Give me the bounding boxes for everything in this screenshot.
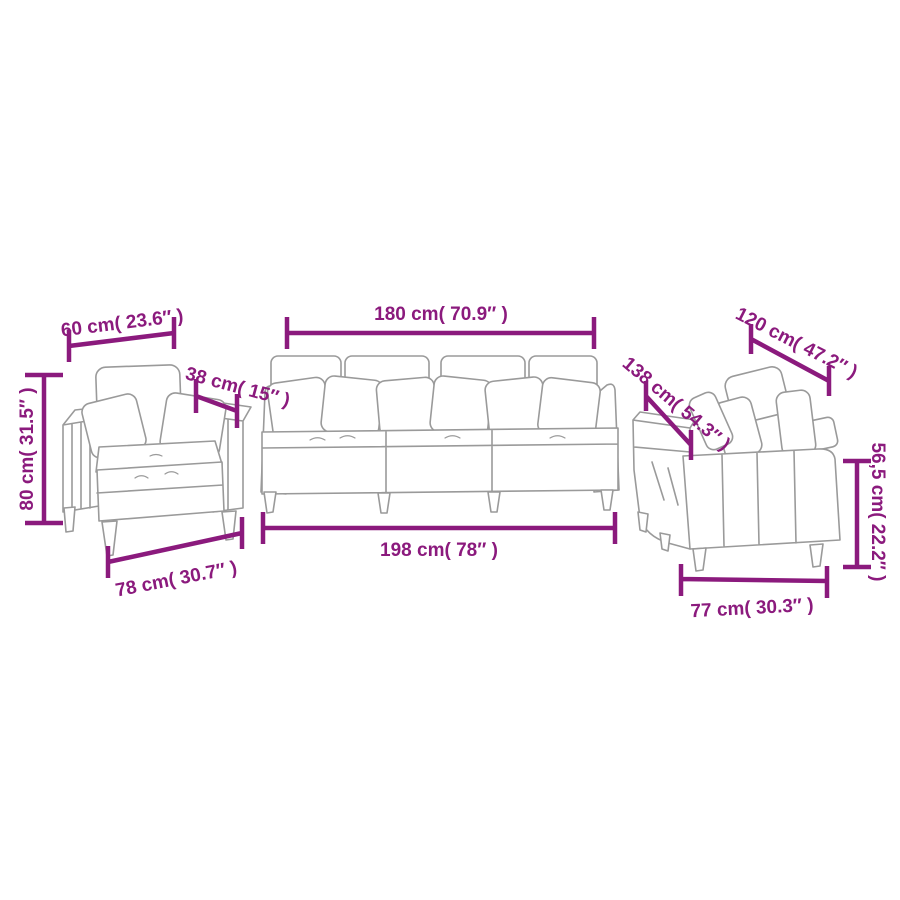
sofa3-width-top-dimension: 180 cm( 70.9″ ) xyxy=(287,304,594,349)
sofa2-width-bottom-dimension: 77 cm( 30.3″ ) xyxy=(681,564,827,622)
armchair-height-label: 80 cm( 31.5″ ) xyxy=(17,387,38,510)
sofa3-width-top-label: 180 cm( 70.9″ ) xyxy=(374,304,508,325)
sofa2-back-panel xyxy=(683,449,840,549)
armchair-base xyxy=(97,462,224,521)
sofa-three-seater-drawing xyxy=(261,356,619,513)
sofa3-pillow-4 xyxy=(429,375,493,437)
sofa3-width-bottom-label: 198 cm( 78″ ) xyxy=(380,540,498,561)
sofa-set-dimension-diagram: 60 cm( 23.6″ ) 38 cm( 15″ ) 80 cm( 31.5″… xyxy=(0,0,900,900)
sofa2-pillow-4 xyxy=(775,389,817,457)
armchair-width-bottom-label: 78 cm( 30.7″ ) xyxy=(114,557,239,601)
armchair-width-bottom-dimension: 78 cm( 30.7″ ) xyxy=(108,517,242,602)
sofa2-height-label: 56,5 cm( 22.2″ ) xyxy=(867,442,888,581)
sofa3-width-bottom-dimension: 198 cm( 78″ ) xyxy=(263,512,615,561)
sofa2-height-dimension: 56,5 cm( 22.2″ ) xyxy=(843,442,888,581)
armchair-width-top-dimension: 60 cm( 23.6″ ) xyxy=(60,306,185,362)
sofa3-pillow-3 xyxy=(376,377,439,438)
diagram-canvas: 60 cm( 23.6″ ) 38 cm( 15″ ) 80 cm( 31.5″… xyxy=(0,0,900,900)
armchair-height-dimension: 80 cm( 31.5″ ) xyxy=(17,375,63,523)
sofa2-width-bottom-label: 77 cm( 30.3″ ) xyxy=(690,595,814,622)
sofa3-pillow-2 xyxy=(320,375,384,437)
sofa2-height-line xyxy=(843,461,871,567)
